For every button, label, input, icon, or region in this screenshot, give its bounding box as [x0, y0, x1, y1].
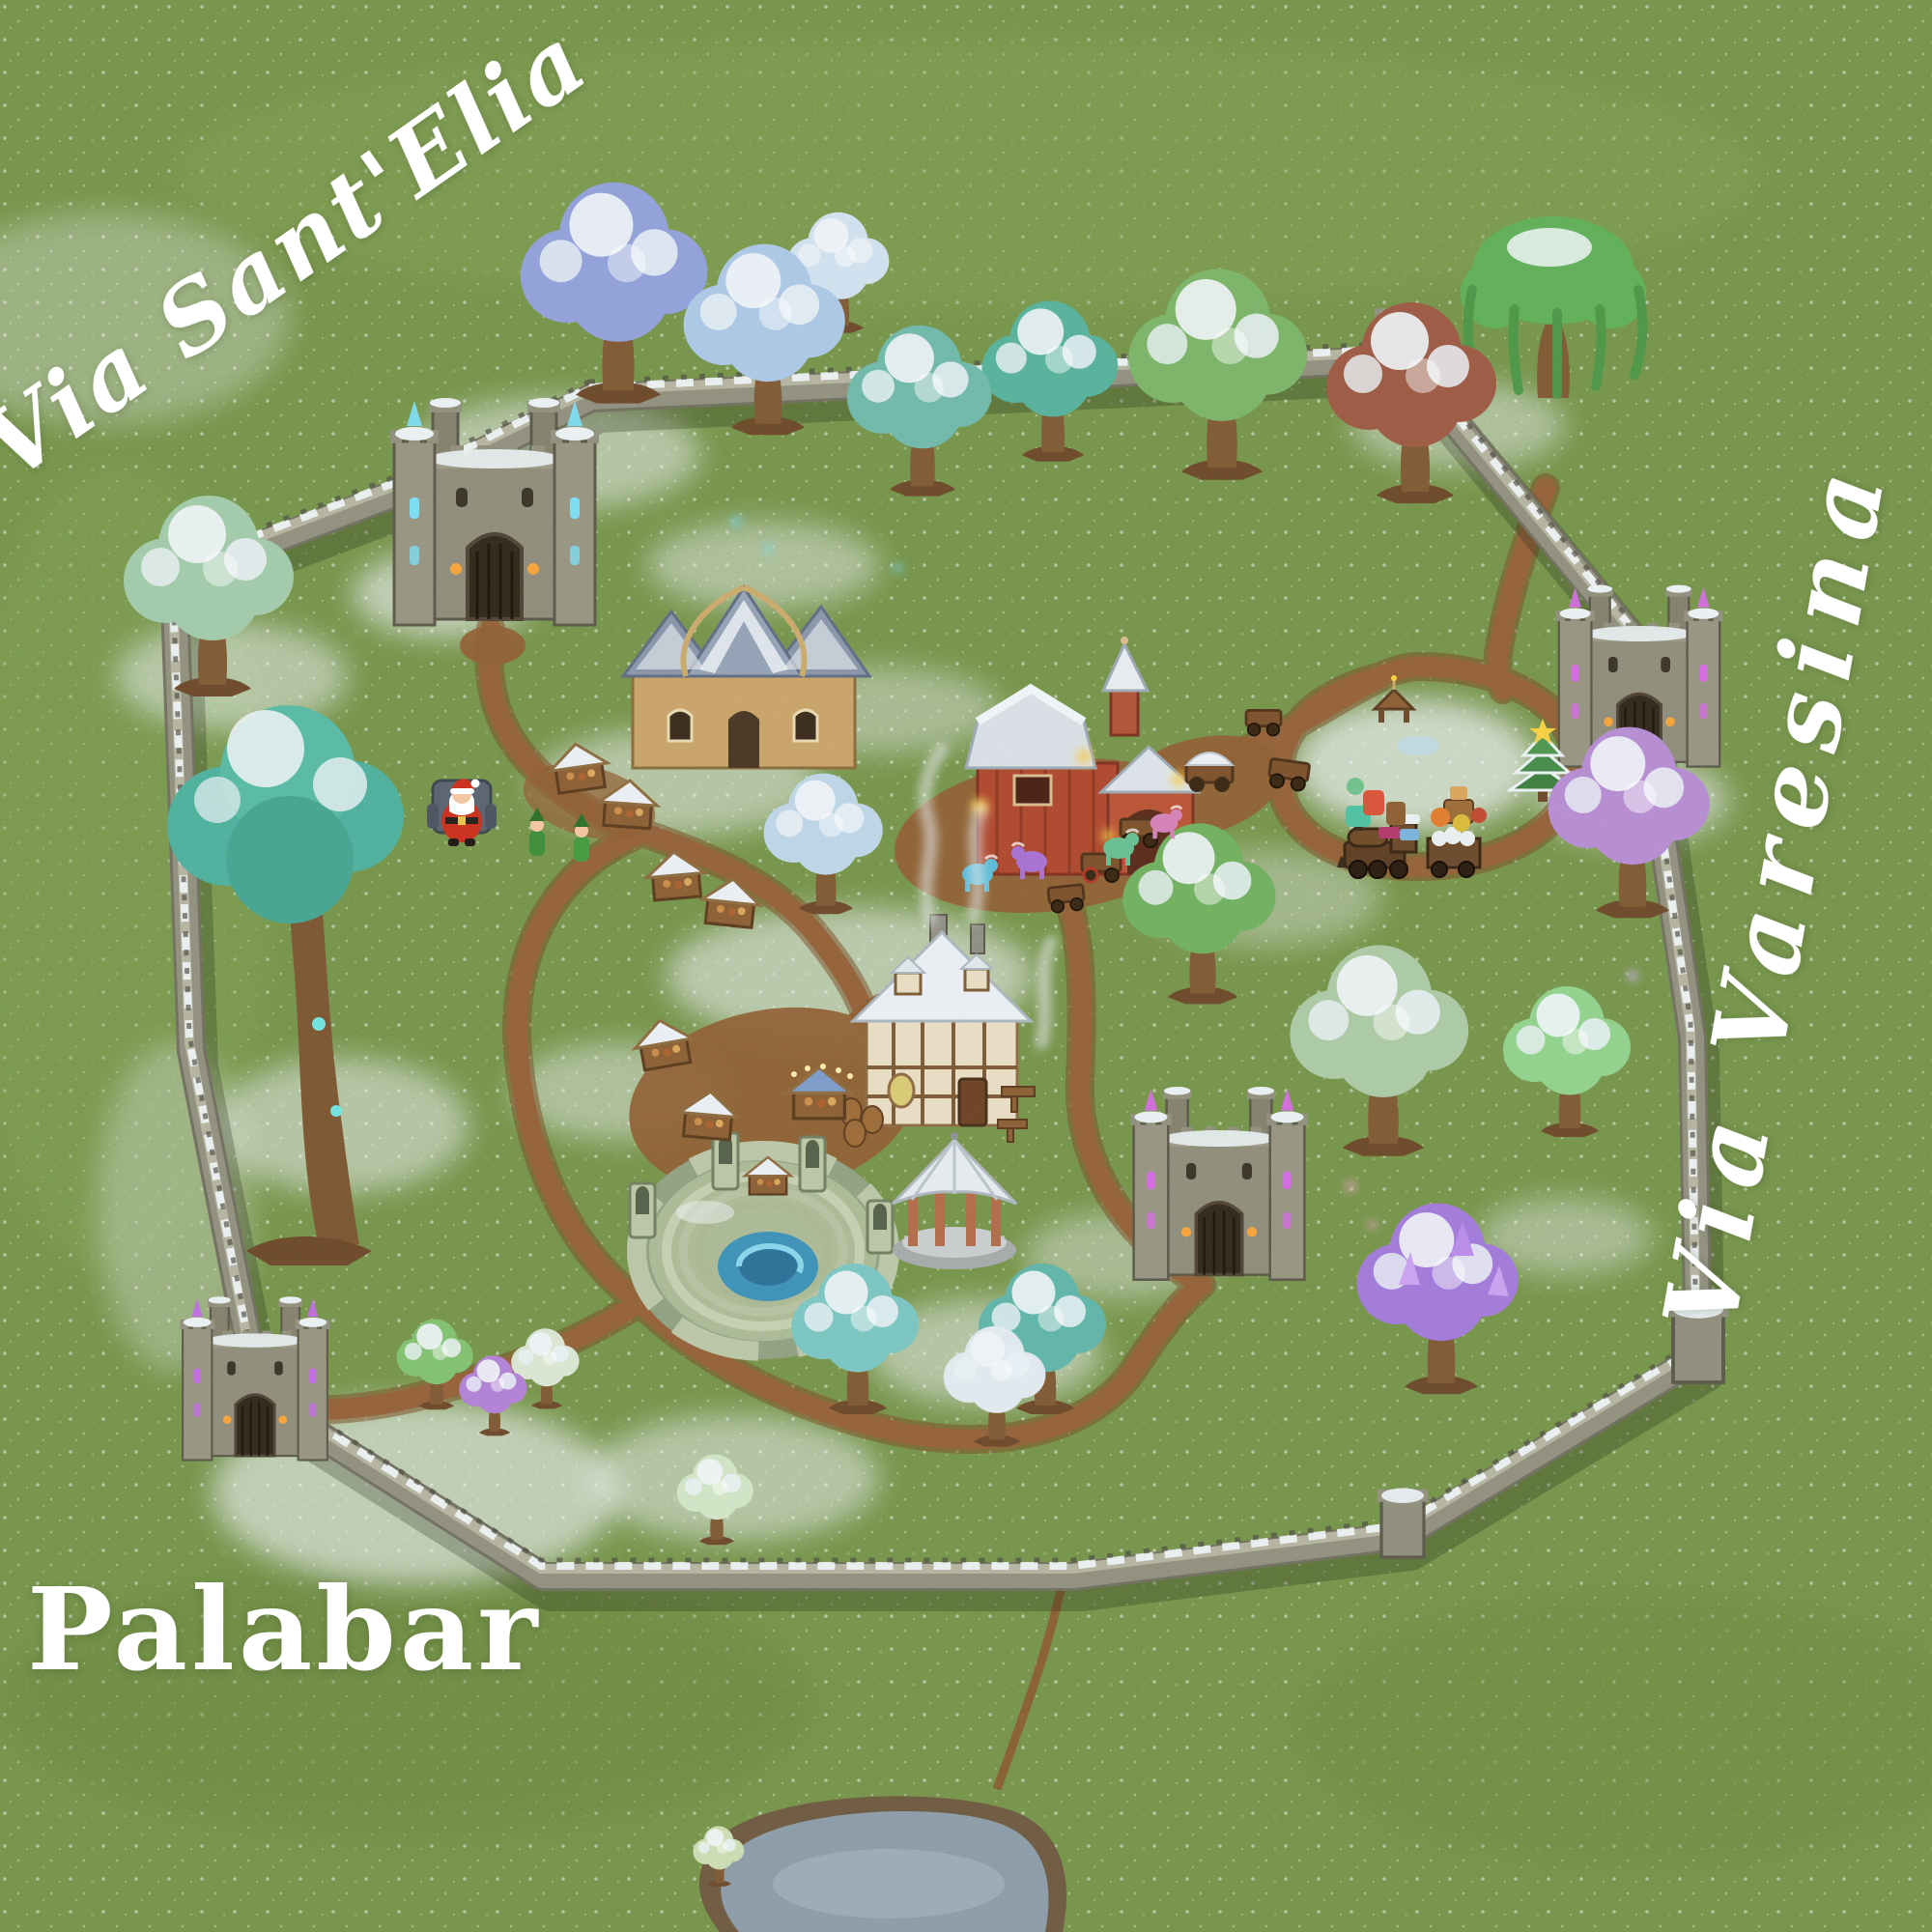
fantasy-village-map: Via Sant'Elia Via Varesina Palabar	[0, 0, 1932, 1932]
street-label-palabar: Palabar	[27, 1573, 541, 1687]
